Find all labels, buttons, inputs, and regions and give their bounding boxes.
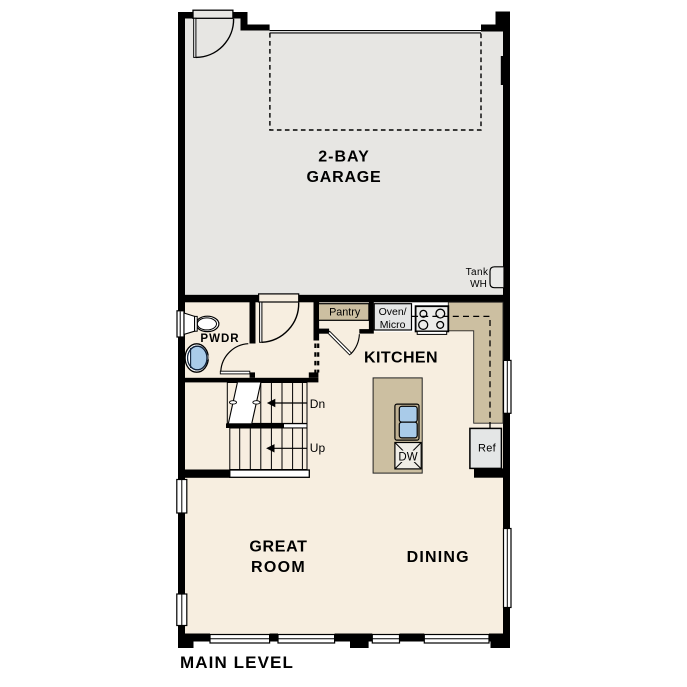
svg-text:KITCHEN: KITCHEN [364,350,438,367]
svg-text:ROOM: ROOM [251,559,306,576]
svg-text:PWDR: PWDR [200,333,239,345]
svg-text:DINING: DINING [407,549,470,566]
svg-text:DW: DW [398,452,417,464]
svg-text:2-BAY: 2-BAY [318,149,370,166]
svg-text:Tank: Tank [466,267,489,278]
svg-text:WH: WH [470,279,487,290]
svg-text:GREAT: GREAT [249,539,307,556]
svg-text:Oven/: Oven/ [379,306,407,318]
svg-text:GARAGE: GARAGE [306,169,381,186]
svg-text:Micro: Micro [380,319,406,331]
svg-text:Pantry: Pantry [329,307,361,319]
svg-text:MAIN LEVEL: MAIN LEVEL [180,653,294,672]
svg-text:Ref: Ref [478,442,497,454]
svg-text:Dn: Dn [310,397,325,411]
svg-text:Up: Up [310,441,326,455]
